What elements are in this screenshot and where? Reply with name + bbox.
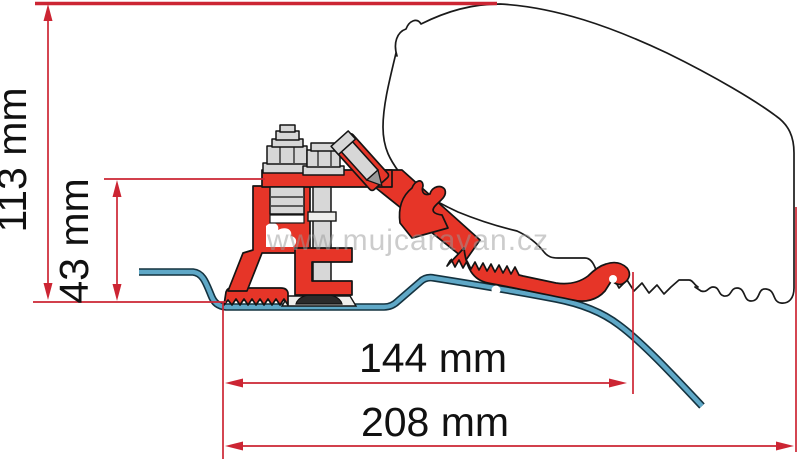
technical-diagram: 113 mm 43 mm 144 mm 208 mm www.mujcarava… — [0, 0, 800, 459]
hex-nut — [307, 150, 340, 167]
central-bolt-washer — [308, 212, 336, 221]
bolt-cap — [280, 125, 295, 132]
arrow-up-43 — [113, 180, 122, 197]
label-43mm: 43 mm — [51, 178, 97, 303]
label-144mm: 144 mm — [359, 335, 507, 381]
arrow-right-208 — [776, 442, 794, 451]
arrow-right-144 — [609, 379, 627, 388]
tower-bolt-gap — [270, 215, 304, 223]
arrow-down-43 — [113, 284, 122, 301]
watermark-text: www.mujcaravan.cz — [266, 224, 549, 257]
label-208mm: 208 mm — [361, 399, 509, 445]
arrow-left-208 — [225, 442, 243, 451]
tower-bolt-window — [270, 187, 304, 214]
arrow-left-144 — [225, 379, 243, 388]
hardware — [263, 125, 391, 295]
hex-nut — [267, 146, 307, 164]
diagram-svg: 113 mm 43 mm 144 mm 208 mm www.mujcarava… — [0, 0, 800, 459]
label-113mm: 113 mm — [0, 87, 35, 232]
arm-cutout — [492, 286, 501, 295]
arrow-up-113 — [44, 4, 53, 21]
hook-cutout — [609, 275, 617, 283]
vehicle-wall-outline — [383, 53, 698, 294]
